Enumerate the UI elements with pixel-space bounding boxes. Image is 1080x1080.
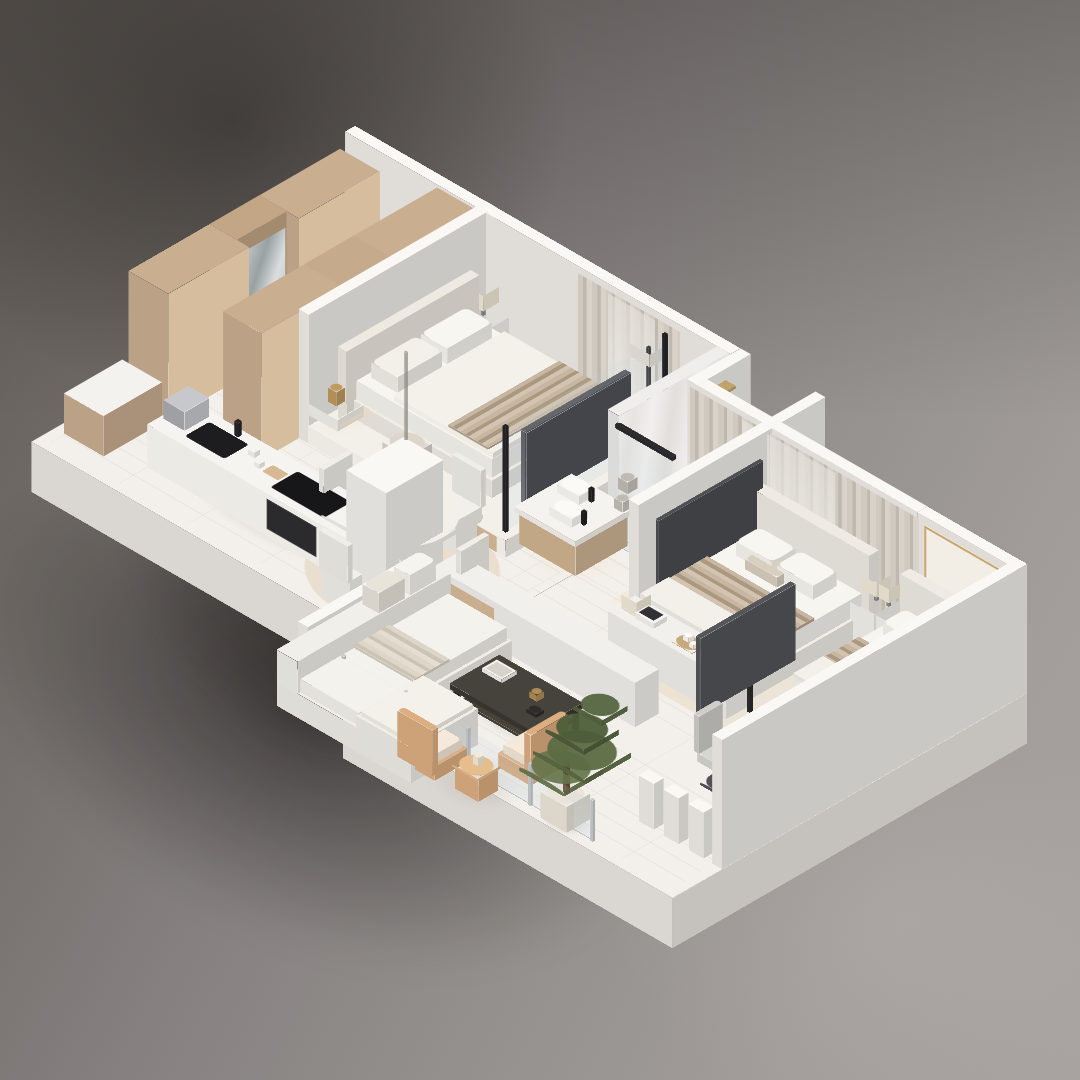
- window-stub-1-face: [639, 775, 654, 830]
- dining-chair-north-back-face: [481, 468, 486, 508]
- armchair2-back-face: [432, 727, 438, 777]
- window-stub-3-face: [689, 804, 704, 859]
- bath-faucet-1-face: [591, 488, 594, 503]
- window-stub-1-face: [654, 778, 664, 830]
- wall-partition-entry-face: [299, 309, 309, 444]
- wall-east-face: [712, 734, 722, 869]
- isometric-floorplan-render: [0, 0, 1080, 1080]
- window-stub-2-face: [679, 792, 689, 844]
- railing-post-5-face: [593, 799, 595, 842]
- island-faucet-face: [238, 421, 242, 438]
- dining-chair-south-back-face: [348, 544, 353, 584]
- window-stub-2-face: [664, 790, 679, 845]
- dining-pendant-rod-face: [406, 352, 408, 454]
- bath-faucet-2-face: [584, 511, 587, 526]
